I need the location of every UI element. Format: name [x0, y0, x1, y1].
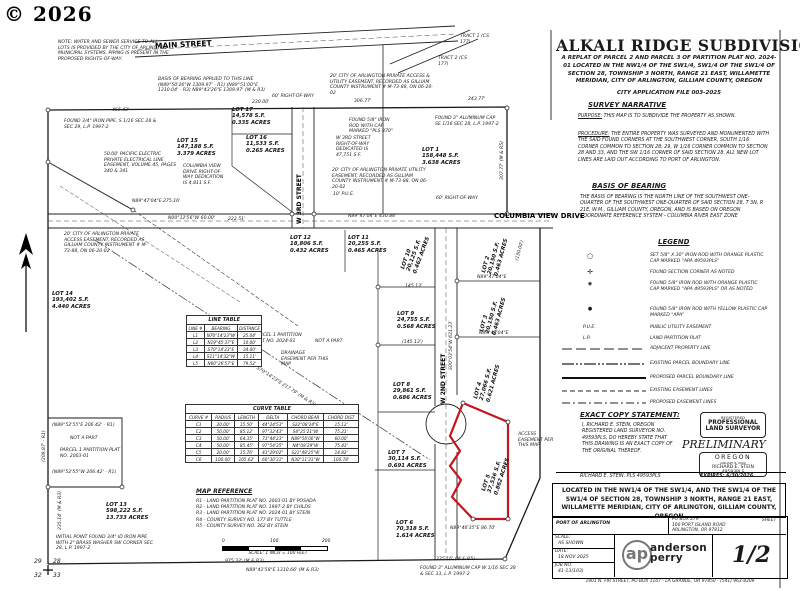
section-corner-legend-icon: ✛ [583, 268, 597, 276]
note-basis-applied: BASIS OF BEARING APPLIED TO THIS LINE (N… [158, 77, 266, 94]
legend-proposed-parcel-line: PROPOSED PARCEL BOUNDARY LINE [650, 375, 734, 381]
firm-logo: ap [622, 540, 652, 570]
list-item: 70,318 S.F. [396, 526, 435, 532]
section-29: 29 [34, 558, 42, 565]
line-table: LINE TABLE LINE #BEARINGDISTANCE L1N70°1… [186, 315, 262, 367]
list-item: 0.686 ACRES [393, 395, 432, 401]
set-iron-rod-icon: ○ [583, 252, 597, 260]
table-cell: L3 [187, 346, 205, 353]
note-found-alum-cap-w: FOUND 3" ALUMINUM CAP W 1/16 SEC 28 & SE… [420, 566, 520, 577]
narrative-procedure: PROCEDURE: THE ENTIRE PROPERTY WAS SURVE… [578, 132, 770, 164]
dim-8670: N89°46'35"E 86.70' [450, 526, 495, 531]
client-name: PORT OF ARLINGTON [556, 521, 610, 526]
table-cell: LENGTH [235, 414, 259, 421]
exact-copy-text: I, RICHARD E. STEIN, OREGON REGISTERED L… [582, 423, 674, 455]
table-cell: L2 [187, 339, 205, 346]
note-water-sewer: NOTE: WATER AND SEWER SERVICE TO ALL LOT… [58, 40, 170, 63]
table-cell: 60°30'31" [258, 456, 287, 463]
scale-tick-0: 0 [222, 539, 225, 544]
street-lines [48, 26, 553, 560]
table-cell: 25.04' [237, 332, 262, 339]
job-label: JOB NO. [555, 563, 572, 568]
note-access-easement: 20' CITY OF ARLINGTON PRIVATE ACCESS EAS… [64, 232, 152, 255]
list-item: ARLINGTON, OR 97812 [672, 528, 726, 534]
table-cell: C3 [186, 435, 212, 442]
list-item: 193,402 S.F. [52, 297, 91, 303]
list-item: 0.335 ACRES [232, 120, 271, 126]
lot-8-label: LOT 829,861 S.F.0.686 ACRES [393, 382, 432, 401]
list-item: R3 - LAND PARTITION PLAT NO. 2024-01 BY … [196, 511, 316, 517]
scale-tick-100: 100 [270, 539, 278, 544]
table-row: C450.00'85.45'97°54'35"N4°08'29"W75.43' [186, 442, 359, 449]
table-cell: S11°14'32"W [205, 353, 237, 360]
dim-23514: 235.14' (M & R3) [58, 491, 63, 530]
table-cell: 44°24'53" [258, 421, 287, 428]
map-reference-heading: MAP REFERENCE [196, 488, 252, 495]
lot-9-label: LOT 924,755 S.F.0.568 ACRES [397, 311, 436, 330]
legend-found-rod-yellow: FOUND 5/8" IRON ROD WITH YELLOW PLASTIC … [650, 307, 768, 318]
table-cell: 97°32'43" [258, 428, 287, 435]
note-utility-easement: 20' CITY OF ARLINGTON PRIVATE UTILITY EA… [332, 168, 432, 191]
table-row: C520.00'15.76'43°29'02"S21°48'25"W14.82' [186, 449, 359, 456]
table-cell: S21°48'25"W [287, 449, 324, 456]
legend-adjacent-line: ADJACENT PROPERTY LINE [650, 346, 711, 352]
list-item: 0.465 ACRES [348, 248, 387, 254]
table-row: CURVE #RADIUSLENGTHDELTACHORD BEARCHORD … [186, 414, 359, 421]
table-cell: N60°26'57"E [205, 360, 237, 367]
dim-43084: N89°47'04"E 430.84' [348, 214, 396, 219]
scale-bar: 0 100 200 SCALE: 1 INCH = 100 FEET [222, 539, 334, 556]
table-cell: 14.82' [324, 449, 359, 456]
signature-rule [556, 472, 786, 473]
table-cell: N70°14'23"W [205, 332, 237, 339]
date-value: 18 NOV 2025 [558, 555, 589, 560]
table-cell: 85.12' [235, 428, 259, 435]
lot-6-label: LOT 670,318 S.F.1.614 ACRES [396, 520, 435, 539]
table-cell: 15.76' [235, 449, 259, 456]
scale-label: SCALE: [555, 535, 571, 540]
legend-existing-easement-line: EXISTING EASEMENT LINES [650, 388, 713, 394]
table-cell: RADIUS [212, 414, 235, 421]
table-cell: S22°08'24"E [287, 421, 324, 428]
section-33: 33 [53, 572, 61, 579]
dim-14513b: (145.13') [402, 340, 423, 345]
list-item: 0.691 ACRES [388, 463, 427, 469]
legend-existing-parcel-line: EXISTING PARCEL BOUNDARY LINE [650, 361, 730, 367]
note-not-a-part-2003: NOT A PART [70, 436, 110, 442]
application-file: CITY APPLICATION FILE 003-2025 [560, 90, 778, 98]
table-cell: L1 [187, 332, 205, 339]
legend-found-rod-orange: FOUND 5/8" IRON ROD WITH ORANGE PLASTIC … [650, 281, 768, 292]
dim-row-60b: 60' RIGHT-OF-WAY [436, 196, 478, 201]
sheet-label: SHEET [762, 518, 776, 523]
table-row: C250.00'85.12'97°32'43"S4°25'21"W75.21' [186, 428, 359, 435]
exact-copy-heading: EXACT COPY STATEMENT: [580, 411, 680, 419]
street-label-w3rd: W 3RD STREET [296, 174, 303, 224]
narrative-heading: SURVEY NARRATIVE [588, 101, 666, 109]
lot-11-label: LOT 1120,255 S.F.0.465 ACRES [348, 235, 387, 254]
table-cell: 34.00' [237, 346, 262, 353]
note-columbia-dedication: COLUMBIA VIEW DRIVE RIGHT-OF-WAY DEDICAT… [183, 164, 227, 187]
table-cell: L5 [187, 360, 205, 367]
dim-243: 243.77' [468, 97, 485, 102]
list-item: 20,255 S.F. [348, 241, 387, 247]
pue-abbr: P.U.E. [583, 325, 596, 331]
preliminary-mark: PRELIMINARY [682, 438, 766, 451]
table-cell: 50.00' [212, 428, 235, 435]
curve-table-title: CURVE TABLE [185, 404, 359, 413]
legend-line-samples [562, 345, 646, 409]
table-cell: 100.78' [324, 456, 359, 463]
note-drainage-easement: DRAINAGE EASEMENT PER THIS MAP [281, 351, 329, 368]
table-cell: 60.00' [324, 435, 359, 442]
table-cell: S70°14'23"E [205, 346, 237, 353]
scale-value: AS SHOWN [558, 541, 583, 546]
client-address: PO BOX 279100 PORT ISLAND ROADARLINGTON,… [672, 517, 726, 534]
section-32: 32 [34, 572, 42, 579]
found-rod-orange-icon: ◉ [583, 281, 597, 287]
table-row: C120.00'15.50'44°24'53"S22°08'24"E15.12' [186, 421, 359, 428]
note-parcel-2003: PARCEL 1 PARTITION PLAT NO. 2003-01 [60, 448, 122, 459]
note-parcel-2024: PARCEL 1 PARTITION PLAT NO. 2024-01 [254, 333, 312, 344]
table-row: C350.00'64.35'73°44'23"N89°56'06"W60.00' [186, 435, 359, 442]
table-row: C6100.00'105.62'60°30'31"N30°11'31"W100.… [186, 456, 359, 463]
dim-33516: 335.16' (M & R5) [436, 557, 475, 562]
list-item: 4.440 ACRES [52, 304, 91, 310]
table-cell: C6 [186, 456, 212, 463]
table-cell: 15.12' [324, 421, 359, 428]
line-table-title: LINE TABLE [186, 315, 262, 324]
dim-row-60a: 60' RIGHT-OF-WAY [272, 94, 314, 99]
note-pacific-easement: 50.00' PACIFIC ELECTRIC PRIVATE ELECTRIC… [104, 152, 178, 175]
legend-lp: LAND PARTITION PLAT [650, 336, 768, 342]
table-cell: C5 [186, 449, 212, 456]
note-w3rd-dedication: W 3RD STREET RIGHT-OF-WAY DEDICATED IS 4… [336, 136, 376, 159]
lp-abbr: L.P. [583, 336, 591, 342]
table-cell: 15.50' [235, 421, 259, 428]
dim-97532: 975.32' (M & R3) [225, 559, 264, 564]
plat-sheet: { "watermark": "© 2026", "header": { "ti… [0, 0, 800, 600]
table-cell: 79.52' [237, 360, 262, 367]
table-cell: N30°11'31"W [287, 456, 324, 463]
table-cell: 105.62' [235, 456, 259, 463]
lot-17-label: LOT 1714,578 S.F.0.335 ACRES [232, 107, 271, 126]
table-cell: CURVE # [186, 414, 212, 421]
sheet-number: 1/2 [732, 542, 771, 568]
curve-table: CURVE TABLE CURVE #RADIUSLENGTHDELTACHOR… [185, 404, 359, 463]
table-cell: 75.43' [324, 442, 359, 449]
list-item: 30,114 S.F. [388, 456, 427, 462]
dim-131066: N89°41'58"E 1310.66' (M & R3) [246, 568, 319, 573]
label-tract-2: TRACT 2 (CS 177) [438, 56, 472, 67]
legend-heading: LEGEND [658, 238, 689, 246]
firm-name: anderson perry [650, 544, 707, 564]
dim-bearing-a: N89°47'04"E [477, 275, 507, 280]
scale-caption: SCALE: 1 INCH = 100 FEET [222, 551, 334, 556]
dim-306: 306.77' [354, 99, 371, 104]
table-cell: 20.00' [212, 421, 235, 428]
list-item: 3.638 ACRES [422, 160, 461, 166]
list-item: 1.614 ACRES [396, 533, 435, 539]
sheet-subtitle: A REPLAT OF PARCEL 2 AND PARCEL 3 OF PAR… [560, 55, 778, 86]
dim-20987: (209.87' - R1) [42, 430, 47, 462]
stamp-land-surveyor: LAND SURVEYOR [701, 426, 765, 432]
dim-27516: N89°47'04"E 275.16' [132, 199, 180, 204]
dim-60: N00°12'56"W 60.00' [168, 216, 215, 221]
table-cell: 50.00' [212, 435, 235, 442]
section-28: 28 [53, 558, 61, 565]
table-cell: N4°08'29"W [287, 442, 324, 449]
ap-logo-icon: ap [622, 540, 652, 570]
list-item: 3.379 ACRES [177, 151, 216, 157]
table-row: L2N19°45'37"E10.00' [187, 339, 262, 346]
street-label-w2nd: W 2ND STREET [440, 354, 447, 404]
list-item: 13.733 ACRES [106, 515, 148, 521]
table-cell: DELTA [258, 414, 287, 421]
procedure-label: PROCEDURE: [578, 132, 610, 137]
basis-text: THE BASIS OF BEARING IS THE NORTH LINE O… [580, 195, 770, 221]
map-reference-list: R1 - LAND PARTITION PLAT NO. 2003-01 BY … [196, 499, 316, 530]
purpose-text: THIS MAP IS TO SUBDIVIDE THE PROPERTY AS… [604, 114, 736, 119]
table-cell: 50.00' [212, 442, 235, 449]
dim-22251: 222.51' [228, 217, 245, 222]
north-arrow-icon [19, 233, 33, 332]
table-cell: 97°54'35" [258, 442, 287, 449]
legend-set-iron-rod: SET 5/8" X 30" IRON ROD WITH ORANGE PLAS… [650, 253, 768, 264]
sheet-title: ALKALI RIDGE SUBDIVISION [556, 36, 782, 55]
table-cell: 15.11' [237, 353, 262, 360]
table-cell: 64.35' [235, 435, 259, 442]
list-item: 0.568 ACRES [397, 324, 436, 330]
table-cell: N19°45'37"E [205, 339, 237, 346]
table-cell: 75.21' [324, 428, 359, 435]
surveyor-signature: RICHARD E. STEIN, PLS 49593PLS [580, 474, 661, 480]
table-cell: C4 [186, 442, 212, 449]
legend-section-corner: FOUND SECTION CORNER AS NOTED [650, 270, 768, 276]
dim-20642a: (N89°52'55"E 206.42' - R1) [52, 423, 115, 428]
table-cell: C2 [186, 428, 212, 435]
list-item: R5 - COUNTY SURVEY NO. 362 BY STEIN [196, 524, 316, 530]
scale-tick-200: 200 [322, 539, 330, 544]
list-item: 158,448 S.F. [422, 153, 461, 159]
job-value: 41-13(103) [558, 569, 584, 574]
dim-14513a: 145.13' [405, 284, 422, 289]
dim-30777: 307.77' (M & R5) [500, 141, 505, 180]
basis-heading: BASIS OF BEARING [592, 182, 666, 190]
list-item: 11,533 S.F. [246, 141, 285, 147]
note-not-a-part-2024: NOT A PART [315, 339, 355, 345]
firm-footer: 1901 N. FIR STREET, PO BOX 1107 - LA GRA… [554, 579, 786, 584]
note-access-per-map: ACCESS EASEMENT PER THIS MAP [518, 432, 562, 449]
stamp-state: OREGON [700, 454, 766, 461]
list-item: 147,188 S.F. [177, 144, 216, 150]
dim-466: 466.43' [112, 108, 129, 113]
table-cell: 10.00' [237, 339, 262, 346]
lot-13-label: LOT 13598,222 S.F.13.733 ACRES [106, 502, 148, 521]
purpose-label: PURPOSE: [578, 114, 602, 119]
dim-20642b: (N89°52'55"W 206.42' - R1) [52, 470, 116, 475]
table-cell: N89°56'06"W [287, 435, 324, 442]
list-item: 29,861 S.F. [393, 388, 432, 394]
legend-proposed-easement-line: PROPOSED EASEMENT LINES [650, 400, 716, 406]
expires-text: EXPIRES: 6/30/2026 [700, 474, 753, 480]
legend-pue: PUBLIC UTILITY EASEMENT [650, 325, 768, 331]
table-cell: 100.00' [212, 456, 235, 463]
note-found-alum-cap-se: FOUND 3" ALUMINUM CAP SE 1/16 SEC 28, L.… [435, 116, 499, 127]
lot-7-label: LOT 730,114 S.F.0.691 ACRES [388, 450, 427, 469]
table-row: LINE #BEARINGDISTANCE [187, 325, 262, 332]
list-item: 14,578 S.F. [232, 113, 271, 119]
table-cell: S4°25'21"W [287, 428, 324, 435]
table-cell: CHORD DIST [324, 414, 359, 421]
list-item: 0.265 ACRES [246, 148, 285, 154]
table-cell: BEARING [205, 325, 237, 332]
copyright-watermark: © 2026 [4, 2, 93, 26]
lot-16-label: LOT 1611,533 S.F.0.265 ACRES [246, 135, 285, 154]
dim-230: 230.00' [252, 100, 269, 105]
firm-name-perry: perry [650, 554, 707, 564]
note-found-iron-pipe: FOUND 3/4" IRON PIPE, S 1/16 SEC 28 & SE… [64, 119, 164, 130]
street-label-columbia: COLUMBIA VIEW DRIVE [494, 212, 585, 220]
found-rod-yellow-icon: ● [583, 306, 597, 312]
table-cell: DISTANCE [237, 325, 262, 332]
note-initial-point: INITIAL POINT FOUND 3/4" ID IRON PIPE WI… [56, 535, 156, 552]
dim-63123: S00°03'54"W 631.23' [449, 321, 454, 370]
table-cell: 85.45' [235, 442, 259, 449]
section-corner-icon [43, 565, 53, 575]
table-cell: 73°44'23" [258, 435, 287, 442]
note-found-rod-pls870: FOUND 5/8" IRON ROD WITH CAP MARKED "PLS… [349, 118, 399, 135]
table-cell: CHORD BEAR [287, 414, 324, 421]
lot-14-label: LOT 14193,402 S.F.4.440 ACRES [52, 291, 91, 310]
lot-15-label: LOT 15147,188 S.F.3.379 ACRES [177, 138, 216, 157]
table-cell: L4 [187, 353, 205, 360]
lot-12-label: LOT 1218,806 S.F.0.432 ACRES [290, 235, 329, 254]
lot-1-label: LOT 1158,448 S.F.3.638 ACRES [422, 147, 461, 166]
table-cell: 20.00' [212, 449, 235, 456]
surveyor-stamp-top: REGISTERED PROFESSIONAL LAND SURVEYOR [700, 412, 766, 438]
dim-pue: 10' P.U.E. [333, 192, 354, 197]
table-row: L4S11°14'32"W15.11' [187, 353, 262, 360]
table-row: L5N60°26'57"E79.52' [187, 360, 262, 367]
narrative-purpose: PURPOSE: THIS MAP IS TO SUBDIVIDE THE PR… [578, 114, 768, 120]
table-cell: 43°29'02" [258, 449, 287, 456]
table-row: L1N70°14'23"W25.04' [187, 332, 262, 339]
note-access-utility-easement: 20' CITY OF ARLINGTON PRIVATE ACCESS & U… [330, 74, 438, 97]
list-item: 0.432 ACRES [290, 248, 329, 254]
table-cell: C1 [186, 421, 212, 428]
label-tract-1: TRACT 1 (CS 177) [460, 34, 494, 45]
list-item: 598,222 S.F. [106, 508, 148, 514]
list-item: 24,755 S.F. [397, 317, 436, 323]
table-row: L3S70°14'23"E34.00' [187, 346, 262, 353]
date-label: DATE: [555, 549, 568, 554]
located-block: LOCATED IN THE NW1/4 OF THE SW1/4, AND T… [552, 483, 786, 518]
list-item: 18,806 S.F. [290, 241, 329, 247]
dim-bearing-b: N89°47'04"E [479, 331, 509, 336]
table-cell: LINE # [187, 325, 205, 332]
